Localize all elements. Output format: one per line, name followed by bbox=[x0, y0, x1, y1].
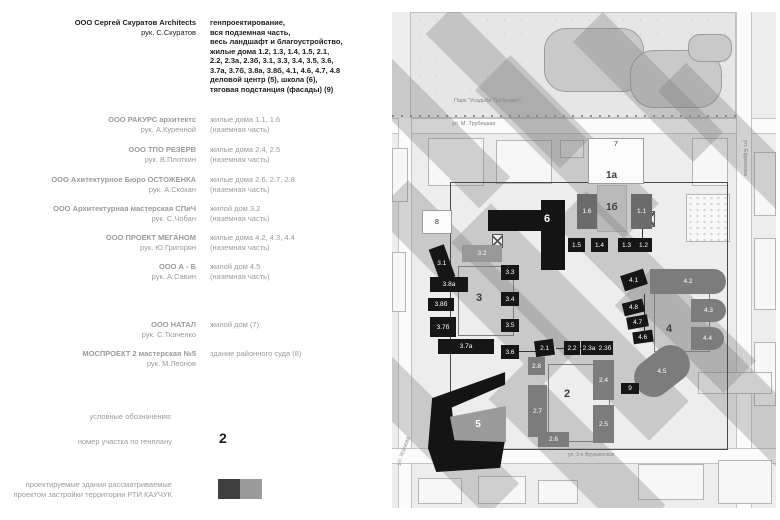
building-label: 4.2 bbox=[683, 278, 692, 285]
firm-name-block: ООО ТПО РЕЗЕРВрук. В.Плоткин bbox=[21, 145, 196, 164]
firm-name: МОСПРОЕКТ 2 мастерская №5 bbox=[21, 349, 196, 359]
pond bbox=[688, 34, 732, 62]
scope-line: (наземная часть) bbox=[210, 155, 382, 165]
firm-name: ООО РАКУРС архитектс bbox=[21, 115, 196, 125]
firm-scope: жилые дома 4.2, 4.3, 4.4(наземная часть) bbox=[210, 233, 382, 252]
building-1.5: 1.5 bbox=[568, 238, 585, 252]
building-2.1: 2.1 bbox=[534, 339, 555, 357]
building-label: 4.4 bbox=[703, 335, 712, 342]
scope-line: (наземная часть) bbox=[210, 272, 382, 282]
building-label: 1.6 bbox=[582, 208, 591, 215]
building-label: 4.3 bbox=[704, 307, 713, 314]
plot-number-label: номер участка по генплану bbox=[12, 437, 172, 447]
firm-name: ООО А - Б bbox=[21, 262, 196, 272]
firm-name-block: ООО НАТАЛрук. С.Ткаченко bbox=[21, 320, 196, 339]
scope-line: (наземная часть) bbox=[210, 185, 382, 195]
building-label: 3.4 bbox=[505, 296, 514, 303]
building-label: 4.7 bbox=[633, 319, 642, 326]
building-label: 7 bbox=[614, 141, 618, 148]
building-8: 8 bbox=[422, 210, 452, 234]
building-label: 2.5 bbox=[599, 421, 608, 428]
legend-note: проектируемые здания рассматриваемые про… bbox=[12, 480, 172, 499]
building-label: 2.1 bbox=[540, 345, 549, 352]
building-1.1: 1.1 bbox=[631, 194, 652, 229]
firm-name: ООО НАТАЛ bbox=[21, 320, 196, 330]
building-label: 1.1 bbox=[637, 208, 646, 215]
building-label: 2.3б bbox=[599, 345, 612, 352]
firm-head: рук. С.Ткаченко bbox=[21, 330, 196, 340]
firm-scope: жилые дома 1.1, 1.6(наземная часть) bbox=[210, 115, 382, 134]
building-label: 3.1 bbox=[437, 260, 446, 267]
firm-name-block: МОСПРОЕКТ 2 мастерская №5рук. М.Леонов bbox=[21, 349, 196, 368]
scope-line: жилые дома 2.4, 2.5 bbox=[210, 145, 382, 155]
building-5-business-centre: 5 bbox=[428, 368, 510, 472]
genplan-sheet: ООО Сергей Скуратов Architectsрук. С.Ску… bbox=[0, 0, 780, 520]
building-label: 1.5 bbox=[572, 242, 581, 249]
building-2.2: 2.2 bbox=[564, 341, 580, 355]
scope-line: (наземная часть) bbox=[210, 125, 382, 135]
building-6-wing bbox=[541, 200, 565, 270]
street-efremova-label: ул. Ефремова bbox=[742, 140, 748, 176]
building-6-school: 6 bbox=[488, 200, 566, 272]
scope-line: весь ландшафт и благоустройство, bbox=[210, 37, 382, 47]
building-5-roof: 5 bbox=[450, 406, 506, 442]
building-3.7б: 3.7б bbox=[430, 317, 456, 337]
scope-line: генпроектирование, bbox=[210, 18, 382, 28]
firm-name: ООО ТПО РЕЗЕРВ bbox=[21, 145, 196, 155]
firm-name: ООО Архитектурная мастерская СПиЧ bbox=[21, 204, 196, 214]
scope-line: жилой дом 4.5 bbox=[210, 262, 382, 272]
legend-swatch-gray bbox=[240, 479, 262, 499]
firm-head: рук. А.Савин bbox=[21, 272, 196, 282]
firm-head: рук. В.Плоткин bbox=[21, 155, 196, 165]
firm-scope: жилой дом 3.2(наземная часть) bbox=[210, 204, 382, 223]
building-2.8: 2.8 bbox=[528, 357, 545, 375]
firm-head: рук. С.Скуратов bbox=[21, 28, 196, 38]
firm-name-block: ООО РАКУРС архитектсрук. А.Куренной bbox=[21, 115, 196, 134]
credits-panel: ООО Сергей Скуратов Architectsрук. С.Ску… bbox=[0, 0, 388, 520]
background-building bbox=[718, 460, 772, 504]
area-label-4: 4 bbox=[666, 323, 672, 335]
background-building bbox=[754, 238, 776, 310]
firm-scope: жилой дом (7) bbox=[210, 320, 382, 330]
firm-head: рук. С.Чобан bbox=[21, 214, 196, 224]
building-label: 3.8а bbox=[443, 281, 456, 288]
firm-head: рук. А.Куренной bbox=[21, 125, 196, 135]
background-building bbox=[538, 480, 578, 504]
building-2.3а: 2.3а bbox=[581, 341, 597, 355]
building-label: 9 bbox=[628, 385, 632, 392]
scope-line: деловой центр (5), школа (6), bbox=[210, 75, 382, 85]
building-label: 1.2 bbox=[639, 242, 648, 249]
area-label-1а: 1а bbox=[606, 170, 617, 181]
genplan-map: Парк "Усадьба Трубецких" ул. М. Трубецка… bbox=[392, 12, 776, 508]
scope-line: жилой дом (7) bbox=[210, 320, 382, 330]
building-2.3б: 2.3б bbox=[597, 341, 613, 355]
legend-note-line-1: проектируемые здания рассматриваемые bbox=[12, 480, 172, 490]
legend-swatch-dark bbox=[218, 479, 240, 499]
building-3.7а: 3.7а bbox=[438, 339, 494, 354]
building-label: 3.5 bbox=[505, 322, 514, 329]
building-2.7: 2.7 bbox=[528, 385, 547, 437]
building-label: 3.7б bbox=[437, 324, 450, 331]
building-label: 8 bbox=[435, 219, 439, 226]
firm-name: ООО Сергей Скуратов Architects bbox=[21, 18, 196, 28]
firm-head: рук. А.Скокан bbox=[21, 185, 196, 195]
building-6-label: 6 bbox=[544, 213, 550, 225]
building-label: 2.3а bbox=[583, 345, 596, 352]
firm-name-block: ООО ПРОЕКТ МЕГАНОМрук. Ю.Григорян bbox=[21, 233, 196, 252]
building-5-label: 5 bbox=[475, 419, 481, 430]
building-label: 3.6 bbox=[505, 349, 514, 356]
firm-head: рук. М.Леонов bbox=[21, 359, 196, 369]
building-label: 1.4 bbox=[595, 242, 604, 249]
scope-line: 3.7а, 3.7б, 3.8а, 3.8б, 4.1, 4.6, 4.7, 4… bbox=[210, 66, 382, 76]
building-label: 2.8 bbox=[532, 363, 541, 370]
building-3.8б: 3.8б bbox=[428, 298, 454, 311]
building-label: 3.8б bbox=[435, 301, 448, 308]
area-label-1б: 1б bbox=[606, 202, 618, 213]
building-1.3: 1.3 bbox=[618, 238, 635, 252]
building-label: 3.2 bbox=[477, 250, 486, 257]
firm-name: ООО Ахитектурное Бюро ОСТОЖЕНКА bbox=[21, 175, 196, 185]
building-4.4: 4.4 bbox=[691, 327, 724, 350]
building-label: 1.3 bbox=[622, 242, 631, 249]
building-9: 9 bbox=[621, 383, 639, 394]
building-label: 4.5 bbox=[657, 368, 666, 375]
firm-scope: генпроектирование,вся подземная часть,ве… bbox=[210, 18, 382, 94]
building-3.5: 3.5 bbox=[501, 319, 519, 332]
scope-line: жилой дом 3.2 bbox=[210, 204, 382, 214]
scope-line: вся подземная часть, bbox=[210, 28, 382, 38]
background-building bbox=[392, 252, 406, 312]
street-trubetskaya-label: ул. М. Трубецкая bbox=[452, 121, 495, 127]
legend-heading: условные обозначения: bbox=[12, 412, 172, 422]
scope-line: жилые дома 1.1, 1.6 bbox=[210, 115, 382, 125]
building-3.4: 3.4 bbox=[501, 292, 519, 306]
firm-scope: здание районного суда (8) bbox=[210, 349, 382, 359]
firm-name-block: ООО Сергей Скуратов Architectsрук. С.Ску… bbox=[21, 18, 196, 37]
building-2.5: 2.5 bbox=[593, 405, 614, 443]
building-4.3: 4.3 bbox=[691, 299, 726, 322]
scope-line: жилые дома 1.2, 1.3, 1.4, 1.5, 2.1, bbox=[210, 47, 382, 57]
building-1.2: 1.2 bbox=[635, 238, 652, 252]
building-2.4: 2.4 bbox=[593, 360, 614, 400]
scope-line: 2.2, 2.3а, 2.3б, 3.1, 3.3, 3.4, 3.5, 3.6… bbox=[210, 56, 382, 66]
building-label: 2.7 bbox=[533, 408, 542, 415]
building-label: 4.8 bbox=[629, 304, 638, 311]
building-4.2: 4.2 bbox=[650, 269, 726, 294]
legend-note-line-2: проектом застройки территории РТИ КАУЧУК bbox=[12, 490, 172, 500]
building-label: 2.6 bbox=[549, 436, 558, 443]
building-label: 3.7а bbox=[460, 343, 473, 350]
firm-scope: жилые дома 2.6, 2.7, 2.8(наземная часть) bbox=[210, 175, 382, 194]
building-label: 4.6 bbox=[638, 334, 647, 341]
building-1.4: 1.4 bbox=[591, 238, 608, 252]
scope-line: жилые дома 4.2, 4.3, 4.4 bbox=[210, 233, 382, 243]
scope-line: (наземная часть) bbox=[210, 243, 382, 253]
area-label-3: 3 bbox=[476, 292, 482, 304]
street-frunzenskaya-label: ул. 3-я Фрунзенская bbox=[568, 452, 614, 458]
building-label: 2.4 bbox=[599, 377, 608, 384]
building-label: 2.2 bbox=[567, 345, 576, 352]
scope-line: здание районного суда (8) bbox=[210, 349, 382, 359]
area-label-2: 2 bbox=[564, 388, 570, 400]
firm-name-block: ООО Архитектурная мастерская СПиЧрук. С.… bbox=[21, 204, 196, 223]
plot-number-value: 2 bbox=[219, 430, 227, 446]
building-label: 4.1 bbox=[629, 277, 638, 284]
scope-line: тяговая подстанция (фасады) (9) bbox=[210, 85, 382, 95]
firm-name: ООО ПРОЕКТ МЕГАНОМ bbox=[21, 233, 196, 243]
building-1.6: 1.6 bbox=[577, 194, 597, 229]
building-3.6: 3.6 bbox=[501, 345, 519, 359]
scope-line: жилые дома 2.6, 2.7, 2.8 bbox=[210, 175, 382, 185]
building-2.6: 2.6 bbox=[538, 432, 569, 447]
park-label: Парк "Усадьба Трубецких" bbox=[454, 98, 521, 104]
firm-scope: жилой дом 4.5(наземная часть) bbox=[210, 262, 382, 281]
firm-name-block: ООО А - Брук. А.Савин bbox=[21, 262, 196, 281]
firm-scope: жилые дома 2.4, 2.5(наземная часть) bbox=[210, 145, 382, 164]
firm-name-block: ООО Ахитектурное Бюро ОСТОЖЕНКАрук. А.Ск… bbox=[21, 175, 196, 194]
building-3.8а: 3.8а bbox=[430, 277, 468, 292]
scope-line: (наземная часть) bbox=[210, 214, 382, 224]
firm-head: рук. Ю.Григорян bbox=[21, 243, 196, 253]
